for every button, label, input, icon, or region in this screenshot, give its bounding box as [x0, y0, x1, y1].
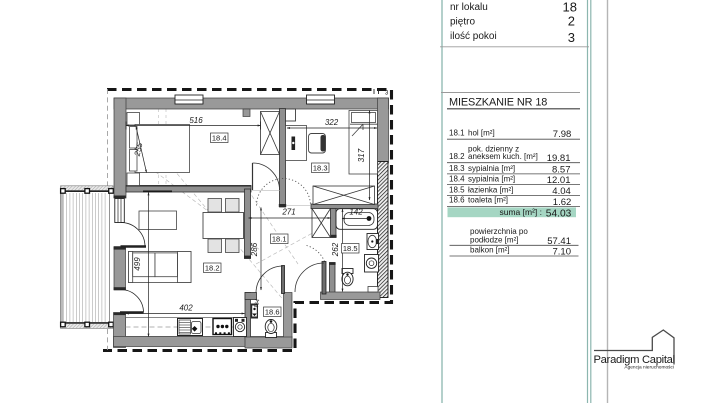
svg-text:18.1: 18.1	[449, 129, 465, 138]
svg-text:18.6: 18.6	[265, 308, 280, 317]
svg-text:54.03: 54.03	[546, 208, 572, 219]
svg-text:balkon [m²]: balkon [m²]	[470, 246, 510, 255]
svg-text:toaleta [m²]: toaleta [m²]	[468, 195, 508, 204]
svg-text:hol [m²]: hol [m²]	[468, 129, 495, 138]
svg-text:3: 3	[568, 30, 575, 45]
svg-text:516: 516	[189, 116, 203, 125]
svg-text:18.5: 18.5	[449, 185, 465, 194]
svg-text:Paradigm Capital: Paradigm Capital	[594, 354, 675, 366]
svg-text:podłodze [m²]: podłodze [m²]	[470, 235, 518, 244]
svg-text:nr lokalu: nr lokalu	[450, 2, 488, 13]
svg-text:18.3: 18.3	[449, 164, 465, 173]
svg-text:18: 18	[563, 0, 577, 15]
svg-text:Agencja nieruchomości: Agencja nieruchomości	[624, 364, 674, 370]
svg-text:286: 286	[250, 242, 259, 257]
svg-text:suma [m²] :: suma [m²] :	[499, 207, 542, 217]
svg-text:2: 2	[568, 14, 575, 29]
svg-text:142: 142	[349, 208, 363, 217]
svg-text:łazienka [m²]: łazienka [m²]	[468, 185, 513, 194]
svg-text:18.6: 18.6	[449, 195, 465, 204]
svg-text:sypialnia [m²]: sypialnia [m²]	[468, 175, 515, 184]
svg-text:piętro: piętro	[450, 17, 475, 28]
svg-text:sypialnia [m²]: sypialnia [m²]	[468, 164, 515, 173]
svg-text:499: 499	[133, 257, 142, 271]
svg-text:317: 317	[357, 148, 366, 162]
svg-text:18.4: 18.4	[212, 134, 227, 143]
svg-text:7.98: 7.98	[553, 129, 572, 140]
svg-text:402: 402	[179, 304, 193, 313]
svg-text:18.3: 18.3	[313, 164, 328, 173]
svg-text:18.1: 18.1	[272, 235, 287, 244]
svg-text:18.5: 18.5	[343, 244, 358, 253]
svg-text:ilość pokoi: ilość pokoi	[450, 31, 497, 42]
svg-text:18.2: 18.2	[205, 264, 220, 273]
svg-text:18.2: 18.2	[449, 152, 465, 161]
svg-text:271: 271	[281, 208, 295, 217]
svg-text:aneksem kuch. [m²]: aneksem kuch. [m²]	[468, 152, 538, 161]
svg-text:MIESZKANIE NR 18: MIESZKANIE NR 18	[449, 97, 547, 109]
svg-text:262: 262	[331, 242, 340, 257]
svg-text:18.4: 18.4	[449, 175, 465, 184]
svg-text:322: 322	[325, 118, 339, 127]
